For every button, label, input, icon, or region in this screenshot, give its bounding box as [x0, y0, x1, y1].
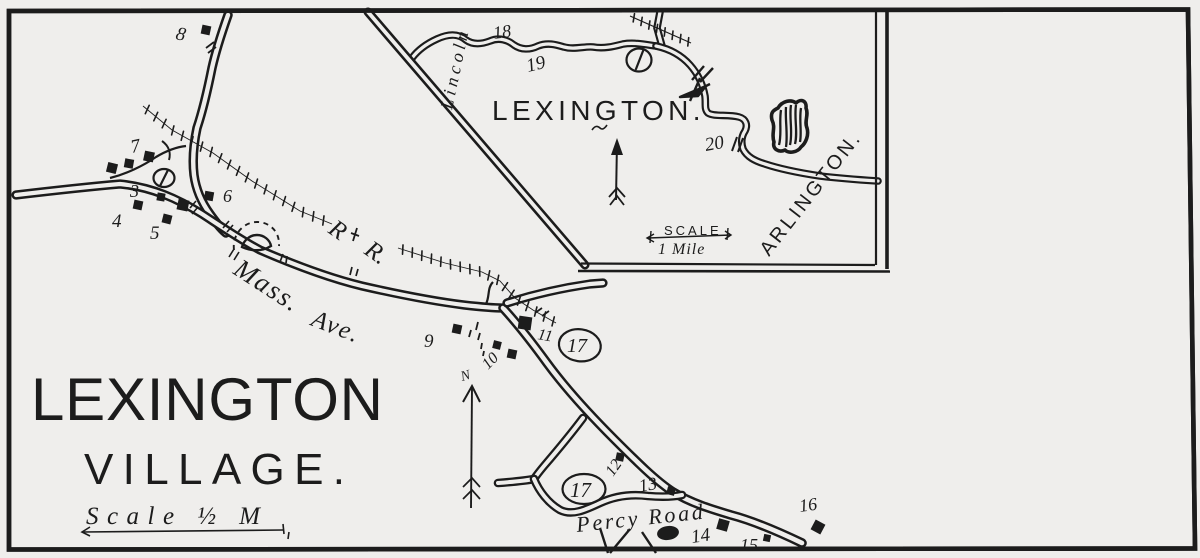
svg-text:16: 16 — [798, 494, 819, 516]
svg-text:4: 4 — [112, 211, 122, 232]
svg-text:5: 5 — [150, 223, 160, 244]
svg-text:17: 17 — [567, 335, 588, 357]
svg-text:LEXINGTON.: LEXINGTON. — [492, 95, 705, 126]
svg-text:15: 15 — [740, 535, 758, 555]
svg-text:11: 11 — [536, 326, 554, 345]
svg-text:13: 13 — [637, 473, 658, 496]
svg-text:LEXINGTON: LEXINGTON — [31, 366, 385, 433]
svg-text:14: 14 — [690, 524, 712, 548]
svg-text:17: 17 — [570, 478, 593, 502]
svg-text:9: 9 — [424, 331, 434, 352]
svg-text:18: 18 — [492, 21, 513, 43]
svg-text:1 Mile: 1 Mile — [658, 241, 705, 258]
svg-text:VILLAGE.: VILLAGE. — [84, 445, 348, 494]
svg-text:3: 3 — [129, 181, 139, 201]
svg-text:6: 6 — [223, 186, 232, 206]
